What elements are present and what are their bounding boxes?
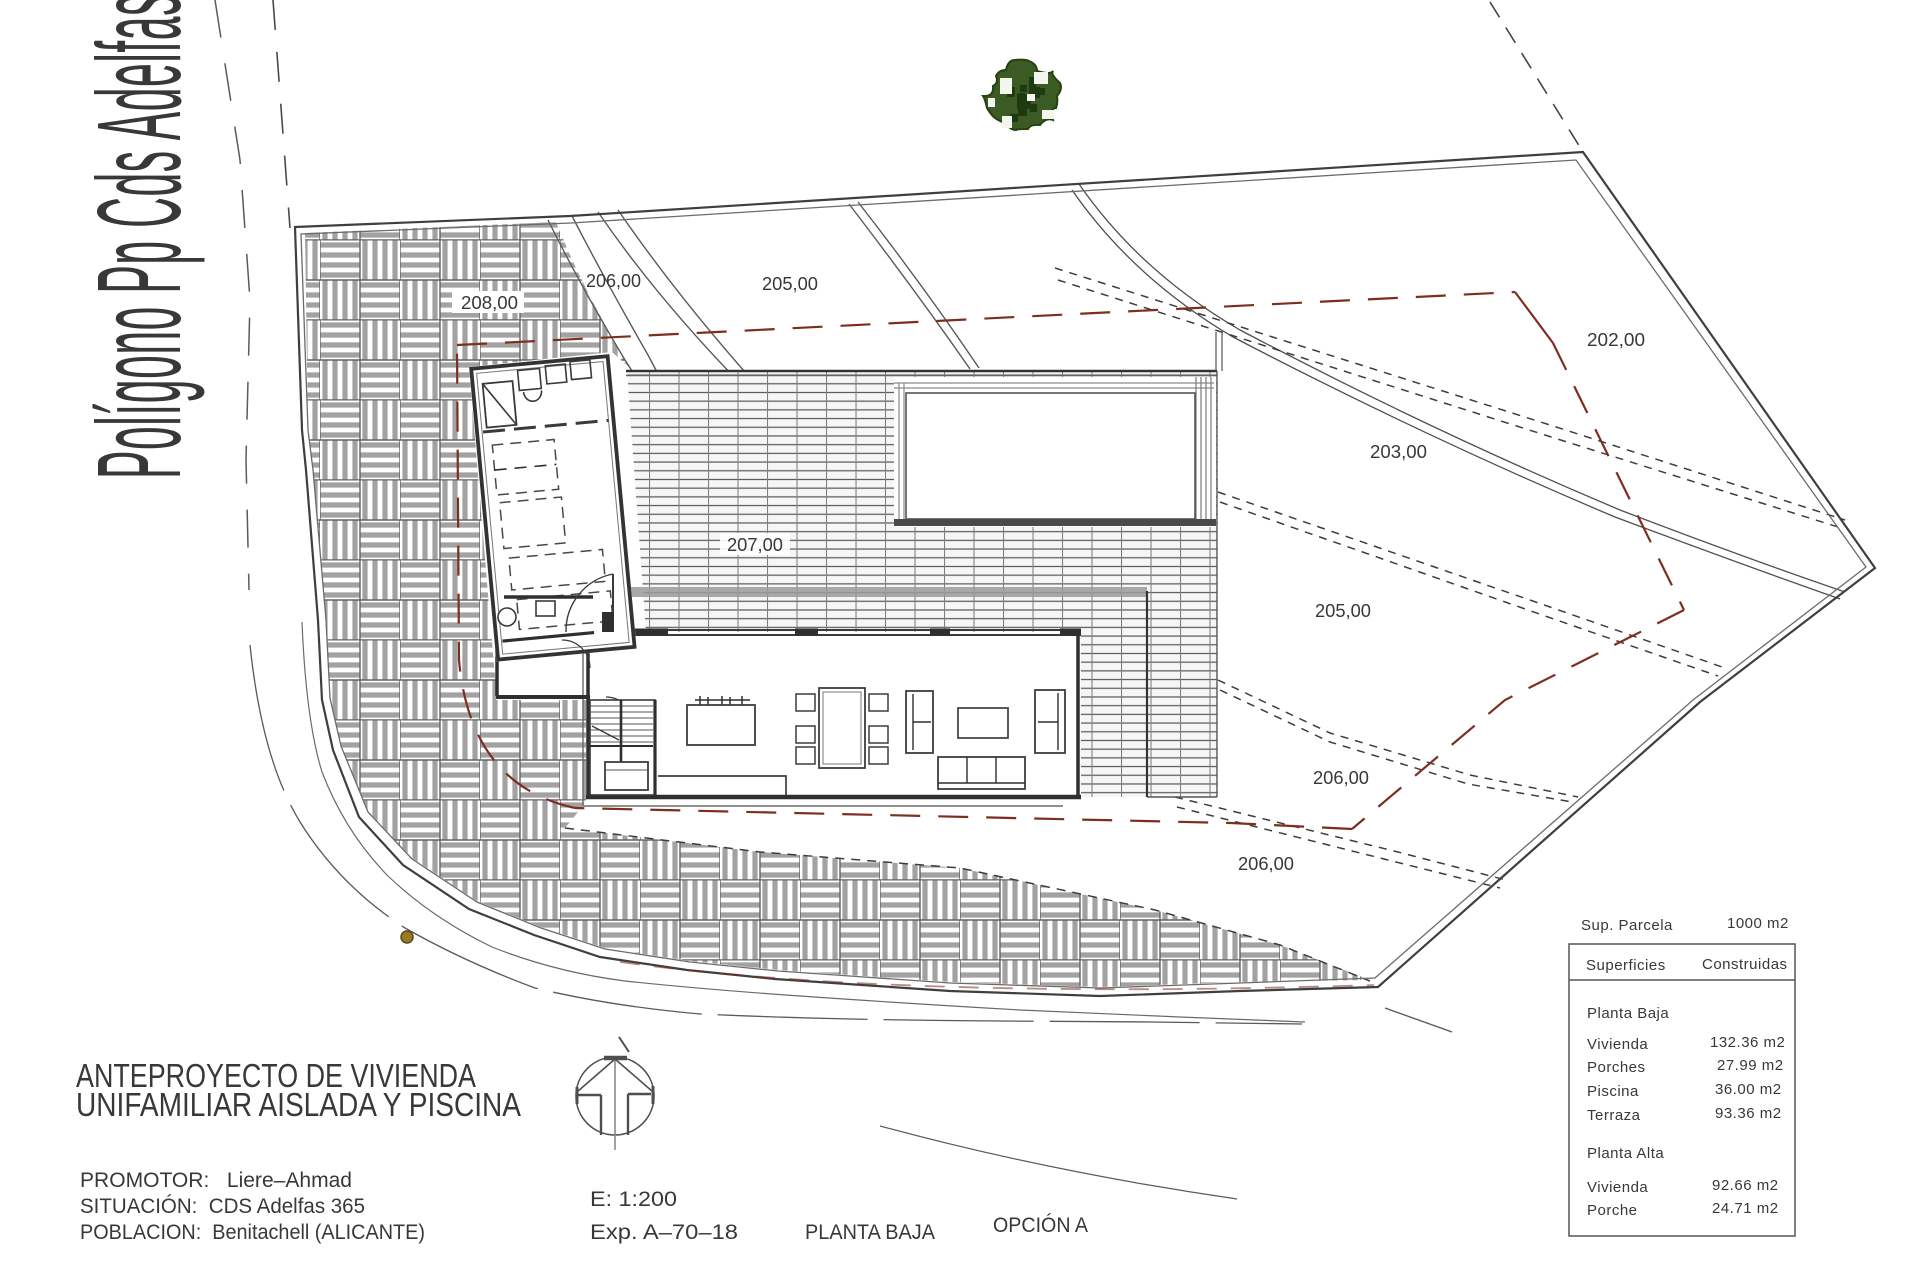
svg-text:203,00: 203,00: [1370, 442, 1427, 462]
svg-text:1000 m2: 1000 m2: [1727, 915, 1789, 932]
svg-text:206,00: 206,00: [586, 271, 641, 291]
svg-text:UNIFAMILIAR AISLADA Y PISCI: UNIFAMILIAR AISLADA Y PISCINA: [76, 1086, 521, 1123]
svg-text:Terraza: Terraza: [1587, 1107, 1641, 1124]
svg-text:Planta Baja: Planta Baja: [1587, 1005, 1669, 1022]
svg-text:Porches: Porches: [1587, 1059, 1646, 1076]
svg-text:Sup. Parcela: Sup. Parcela: [1581, 917, 1673, 934]
svg-text:93.36 m2: 93.36 m2: [1715, 1105, 1782, 1122]
svg-text:OPCIÓN A: OPCIÓN A: [993, 1214, 1088, 1237]
svg-text:Construidas: Construidas: [1702, 956, 1788, 973]
svg-text:Polígono Pp Cds Adelfas: Polígono Pp Cds Adelfas: [73, 0, 205, 479]
svg-text:Vivienda: Vivienda: [1587, 1179, 1648, 1196]
svg-text:36.00 m2: 36.00 m2: [1715, 1081, 1782, 1098]
svg-text:205,00: 205,00: [762, 274, 818, 294]
svg-text:208,00: 208,00: [461, 293, 518, 313]
svg-text:E: 1:200: E: 1:200: [590, 1188, 677, 1211]
svg-text:202,00: 202,00: [1587, 330, 1645, 350]
svg-text:POBLACION: Benitachell (ALICA: POBLACION: Benitachell (ALICANTE): [80, 1221, 425, 1244]
svg-text:Superficies: Superficies: [1586, 957, 1666, 974]
svg-text:206,00: 206,00: [1238, 854, 1294, 874]
svg-text:Planta Alta: Planta Alta: [1587, 1145, 1664, 1162]
svg-text:Porche: Porche: [1587, 1202, 1638, 1219]
svg-text:27.99 m2: 27.99 m2: [1717, 1057, 1784, 1074]
svg-text:Exp. A–70–18: Exp. A–70–18: [590, 1221, 738, 1244]
svg-text:205,00: 205,00: [1315, 601, 1371, 621]
svg-text:PROMOTOR: Liere–Ahmad: PROMOTOR: Liere–Ahmad: [80, 1169, 352, 1192]
svg-text:Vivienda: Vivienda: [1587, 1036, 1648, 1053]
svg-text:Piscina: Piscina: [1587, 1083, 1639, 1100]
svg-text:92.66 m2: 92.66 m2: [1712, 1177, 1779, 1194]
svg-text:PLANTA BAJA: PLANTA BAJA: [805, 1221, 935, 1244]
svg-text:24.71 m2: 24.71 m2: [1712, 1200, 1779, 1217]
svg-text:SITUACIÓN: CDS Adelfas 365: SITUACIÓN: CDS Adelfas 365: [80, 1195, 365, 1218]
svg-text:207,00: 207,00: [727, 535, 783, 555]
svg-text:206,00: 206,00: [1313, 768, 1369, 788]
svg-text:132.36 m2: 132.36 m2: [1710, 1034, 1785, 1051]
